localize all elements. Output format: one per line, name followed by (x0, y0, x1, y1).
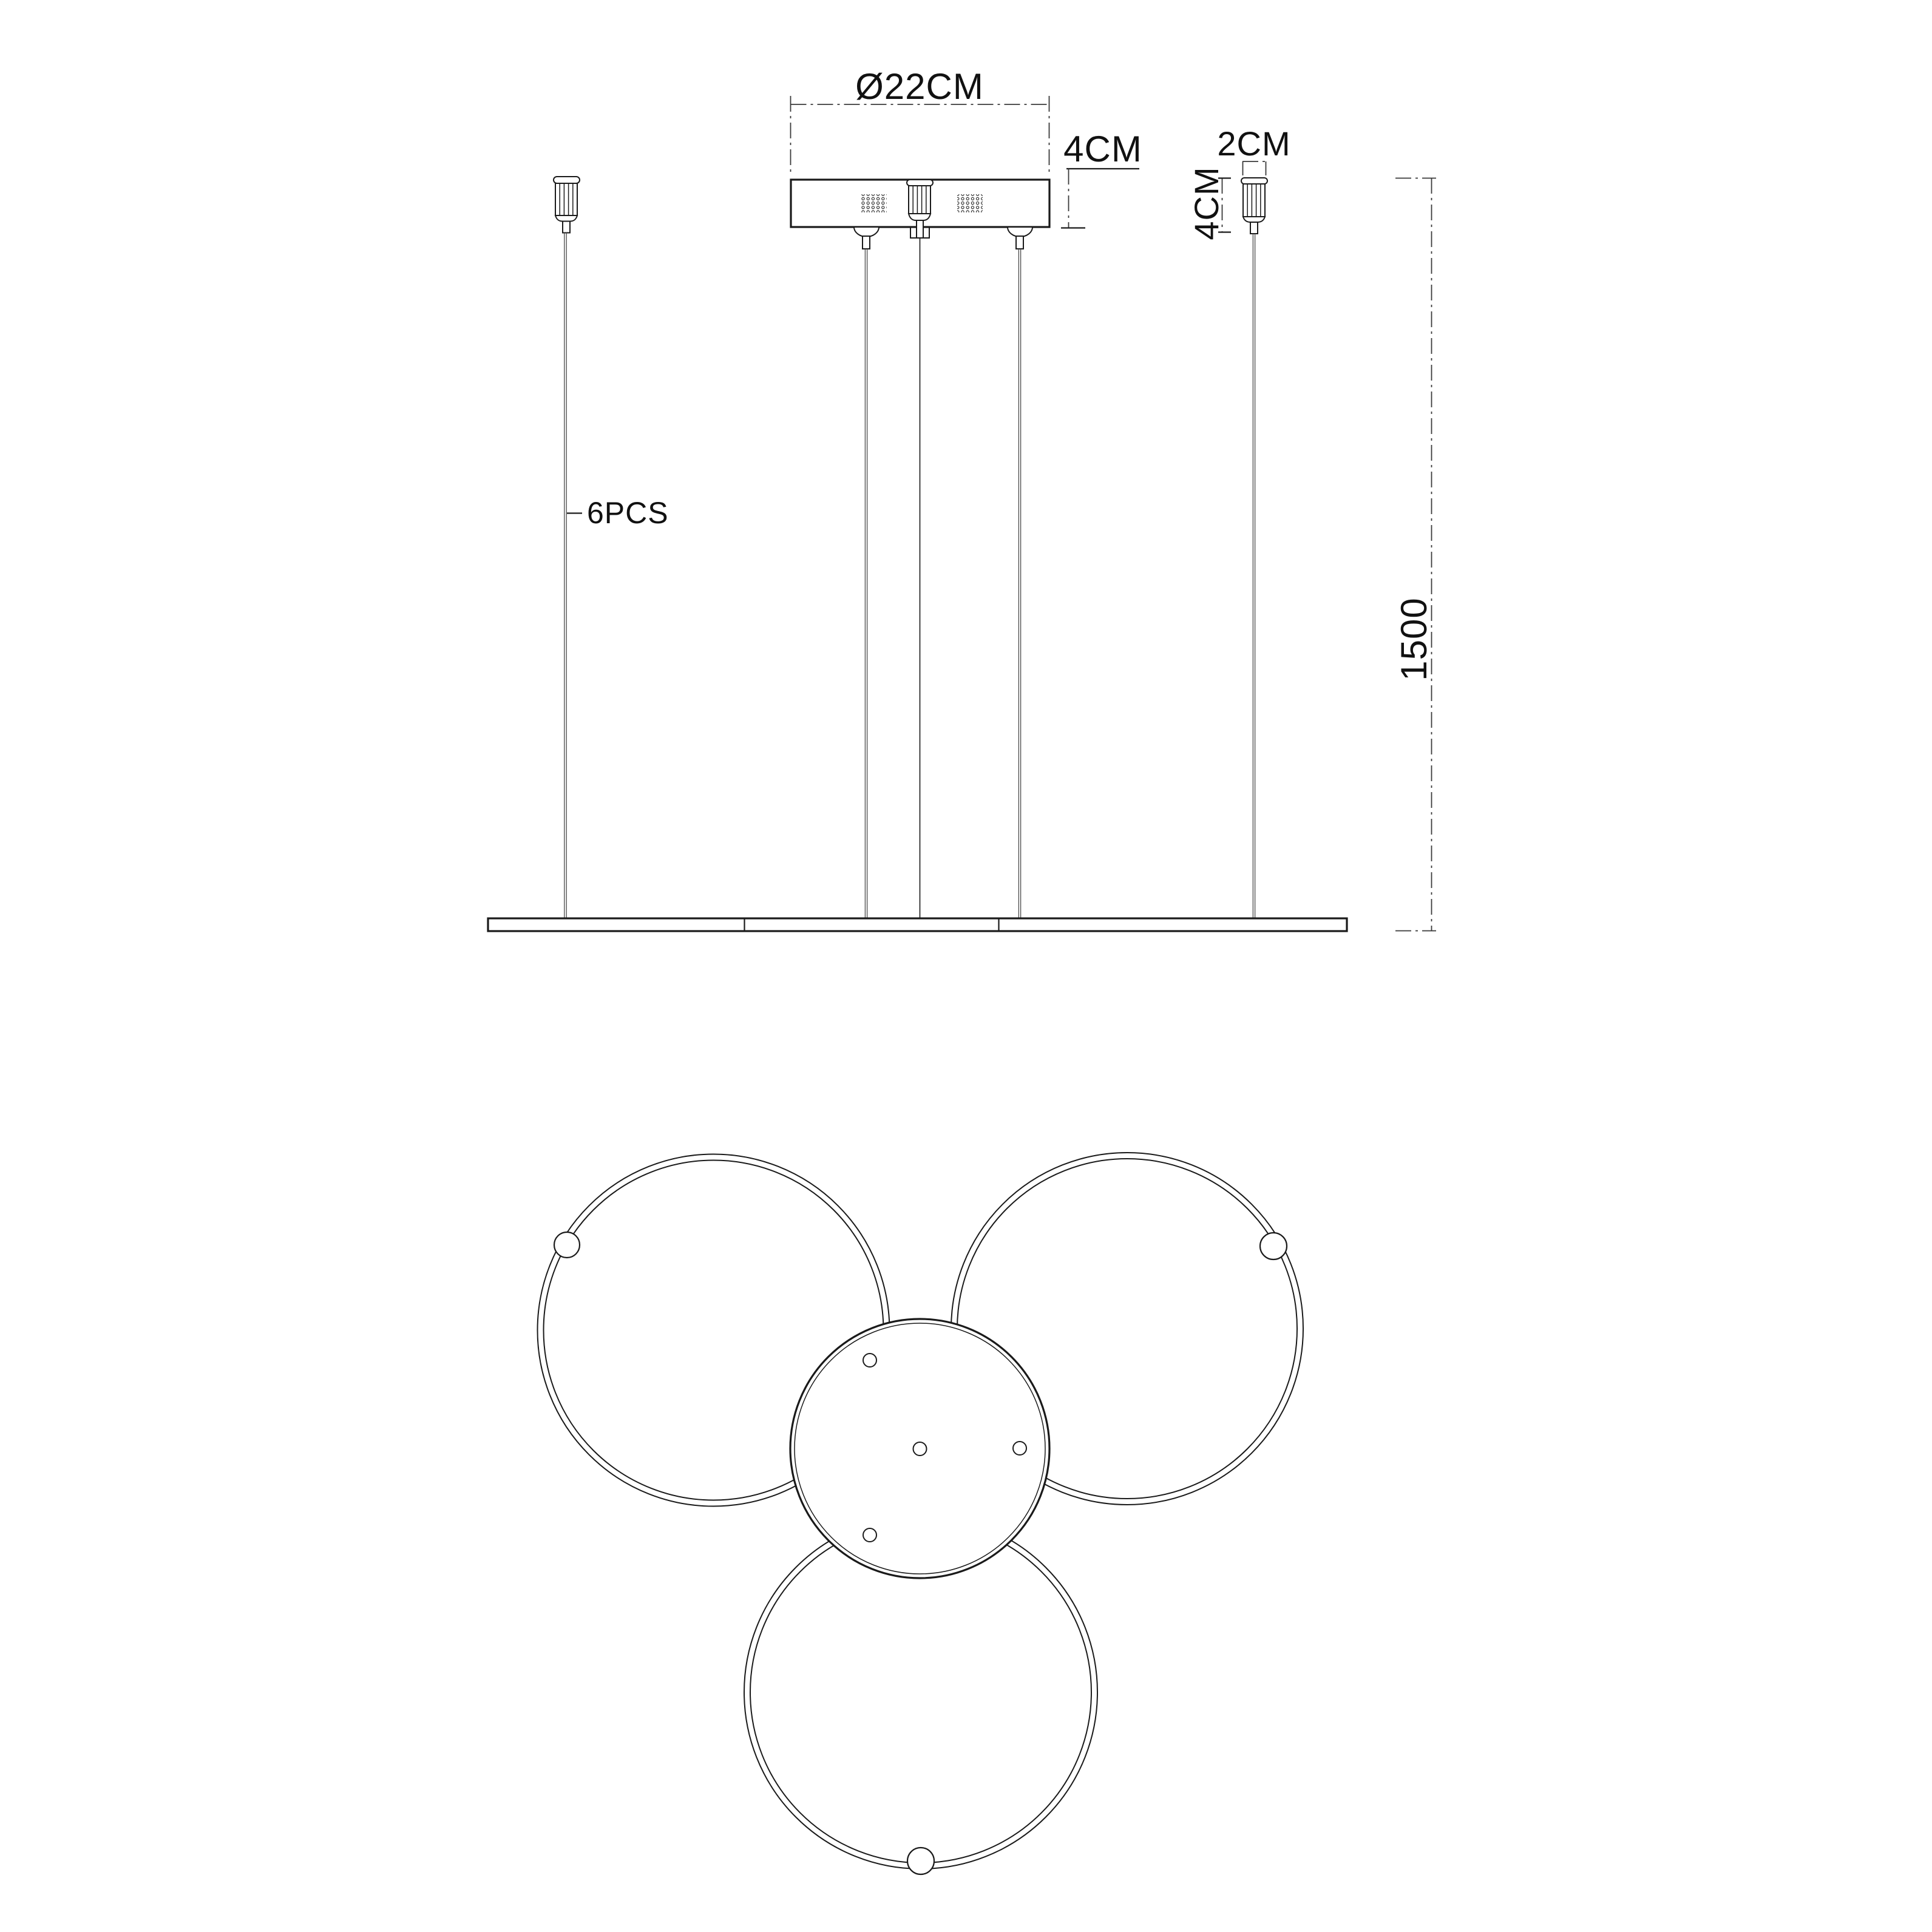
canopy-disc (790, 1319, 1049, 1578)
dome (1008, 227, 1032, 237)
canopy-height-label: 4CM (1063, 129, 1142, 169)
vent-grid-right (957, 194, 983, 212)
gland-bell (1243, 217, 1265, 222)
canopy-dome-left (854, 227, 879, 918)
grommet-right (1260, 1233, 1287, 1259)
gland-cap (1241, 178, 1267, 184)
grommet-left (554, 1232, 580, 1258)
dimension-canopy-height: 4CM (1061, 129, 1142, 228)
mount-hole (1013, 1442, 1026, 1455)
technical-drawing: Ø22CM 4CM 6PCS (0, 0, 1932, 1932)
center-hole (913, 1442, 927, 1456)
left-cable-assembly (554, 177, 580, 918)
right-cable-assembly (1241, 178, 1267, 918)
dome (854, 227, 879, 237)
note-cord-count: 6PCS (567, 496, 669, 530)
drop-length-label: 1500 (1394, 597, 1434, 680)
side-view: Ø22CM 4CM 6PCS (488, 66, 1436, 931)
gland-nipple (563, 222, 570, 233)
gland-cap (907, 180, 933, 186)
plan-view (538, 1153, 1304, 1874)
grommet-bottom (907, 1848, 934, 1874)
vent-grid-left (861, 194, 887, 212)
dimension-gland-height: 4CM (1187, 166, 1231, 240)
dimension-gland-width: 2CM (1217, 124, 1290, 175)
dome-nipple (863, 236, 870, 249)
gland-body (1243, 184, 1265, 217)
gland-bell (555, 215, 577, 222)
gland-nipple (917, 220, 923, 238)
ceiling-canopy (791, 180, 1049, 918)
central-gland (907, 180, 933, 918)
dimension-drop-length: 1500 (1394, 178, 1436, 931)
page: Ø22CM 4CM 6PCS (0, 0, 1932, 1932)
ring-bar-edge-view (488, 918, 1347, 931)
canopy-dome-right (1008, 227, 1032, 918)
mount-hole (863, 1528, 876, 1542)
dome-nipple (1016, 236, 1023, 249)
dimension-canopy-diameter: Ø22CM (791, 66, 1049, 176)
mount-hole (863, 1354, 876, 1367)
gland-cap (554, 177, 580, 183)
gland-width-label: 2CM (1217, 124, 1290, 163)
gland-body (555, 183, 577, 215)
gland-bell (909, 214, 930, 220)
canopy-diameter-label: Ø22CM (855, 66, 984, 107)
gland-body (909, 186, 930, 214)
cord-count-label: 6PCS (587, 496, 669, 530)
gland-nipple (1250, 222, 1258, 234)
bar-outline (488, 918, 1347, 931)
